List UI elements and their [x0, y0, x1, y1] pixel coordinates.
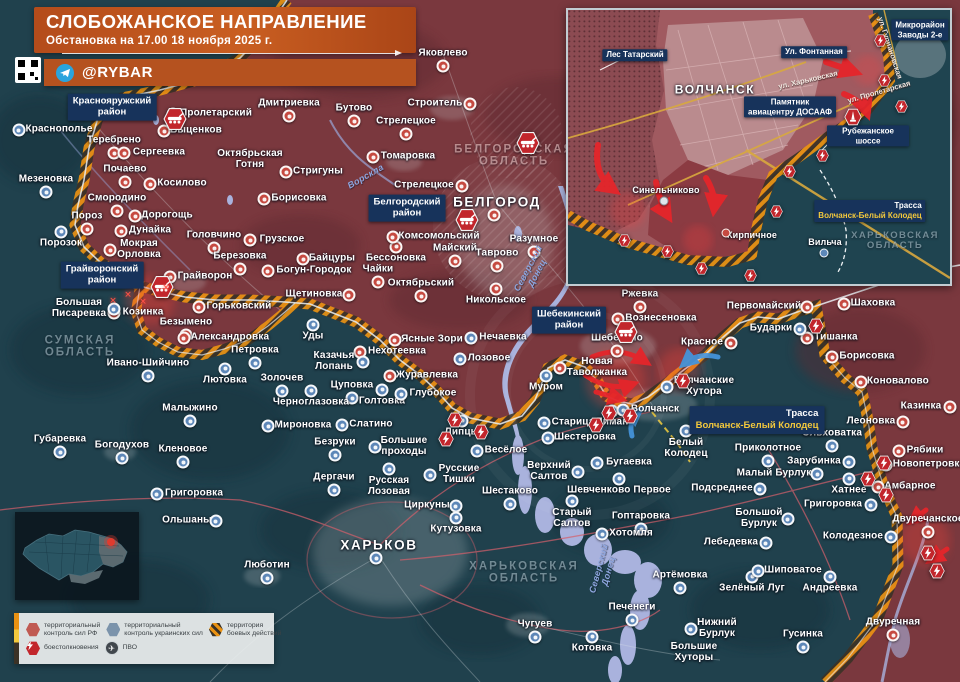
settlement-marker: [280, 166, 293, 179]
channel-bar: @RYBAR: [44, 59, 416, 86]
settlement-marker: [356, 356, 369, 369]
settlement-marker: [400, 128, 413, 141]
settlement-marker: [297, 253, 310, 266]
settlement-marker: [383, 370, 396, 383]
settlement-marker: [129, 210, 142, 223]
inset-chip: Рубежанское шоссе: [827, 125, 909, 146]
legend: территориальный контроль сил РФтерритори…: [14, 613, 274, 664]
settlement-marker: [276, 385, 289, 398]
district-chip: Грайворонский район: [61, 262, 144, 289]
settlement-marker: [824, 570, 837, 583]
settlement-marker: [797, 641, 810, 654]
settlement-marker: [150, 488, 163, 501]
settlement-marker: [753, 483, 766, 496]
inset-route-line2: Волчанск-Белый Колодец: [818, 211, 921, 221]
settlement-marker: [801, 301, 814, 314]
settlement-marker: [424, 469, 437, 482]
settlement-marker: [540, 369, 553, 382]
legend-item: территориальный контроль сил РФ: [26, 622, 100, 638]
legend-bolt-icon: [26, 641, 40, 655]
settlement-marker: [528, 246, 541, 259]
route-chip-line2: Волчанск-Белый Колодец: [696, 420, 819, 432]
inset-route-line1: Трасса: [818, 201, 921, 211]
title-arrow-line: [62, 53, 396, 54]
settlement-marker: [759, 537, 772, 550]
settlement-marker: [826, 351, 839, 364]
settlement-marker: [177, 332, 190, 345]
settlement-marker: [884, 531, 897, 544]
settlement-marker: [209, 515, 222, 528]
settlement-marker: [192, 301, 205, 314]
settlement-marker: [367, 151, 380, 164]
channel-handle: @RYBAR: [82, 64, 153, 81]
legend-item-label: ПВО: [123, 644, 137, 652]
settlement-marker: [144, 178, 157, 191]
settlement-marker: [591, 457, 604, 470]
settlement-marker: [116, 452, 129, 465]
settlement-marker: [455, 180, 468, 193]
district-chip: Краснояружский район: [68, 94, 157, 121]
settlement-marker: [463, 98, 476, 111]
settlement-marker: [491, 260, 504, 273]
legend-item-label: боестолкновения: [44, 644, 99, 652]
settlement-marker: [826, 440, 839, 453]
settlement-marker: [342, 289, 355, 302]
inset-route-chip: ТрассаВолчанск-Белый Колодец: [814, 200, 925, 222]
settlement-marker: [348, 115, 361, 128]
settlement-marker: [611, 345, 624, 358]
settlement-marker: [843, 472, 856, 485]
legend-war-icon: [209, 623, 223, 637]
settlement-marker: [635, 523, 648, 536]
settlement-marker: [529, 631, 542, 644]
page-title: СЛОБОЖАНСКОЕ НАПРАВЛЕНИЕ: [46, 12, 406, 32]
qr-code: [15, 57, 41, 83]
settlement-marker: [896, 416, 909, 429]
settlement-marker: [613, 472, 626, 485]
settlement-marker: [119, 176, 132, 189]
settlement-marker: [336, 419, 349, 432]
settlement-marker: [386, 231, 399, 244]
legend-item-label: территориальный контроль украинских сил: [124, 622, 203, 638]
inset-pin: [722, 229, 731, 238]
settlement-marker: [793, 323, 806, 336]
settlement-marker: [328, 484, 341, 497]
inset-chip: Лес Татарский: [602, 49, 667, 61]
settlement-marker: [261, 572, 274, 585]
settlement-marker: [219, 362, 232, 375]
settlement-marker: [104, 244, 117, 257]
settlement-marker: [395, 388, 408, 401]
settlement-marker: [781, 513, 794, 526]
settlement-marker: [208, 242, 221, 255]
settlement-marker: [307, 318, 320, 331]
legend-item: ✈ПВО: [105, 641, 137, 655]
settlement-marker: [571, 466, 584, 479]
clash-burst-icon: ✕: [139, 299, 147, 308]
city-marker: [370, 552, 383, 565]
inset-chip: Микрорайон Заводы 2-е: [891, 19, 948, 40]
district-chip: Белгородский район: [369, 195, 446, 222]
ukraine-minimap: [15, 512, 139, 600]
settlement-marker: [454, 353, 467, 366]
settlement-marker: [81, 223, 94, 236]
settlement-marker: [415, 290, 428, 303]
settlement-marker: [118, 147, 131, 160]
settlement-marker: [258, 193, 271, 206]
settlement-marker: [634, 301, 647, 314]
settlement-marker: [922, 526, 935, 539]
settlement-marker: [854, 376, 867, 389]
settlement-marker: [111, 205, 124, 218]
map-canvas: ПролетарскийБыценковТеребреноСергеевкаПо…: [0, 0, 960, 682]
settlement-marker: [660, 381, 673, 394]
settlement-marker: [261, 265, 274, 278]
legend-pvo-icon: ✈: [105, 641, 119, 655]
legend-item: боестолкновения: [26, 641, 99, 655]
settlement-marker: [674, 582, 687, 595]
settlement-marker: [142, 370, 155, 383]
settlement-marker: [383, 463, 396, 476]
settlement-marker: [262, 420, 275, 433]
clash-burst-icon: ✕: [162, 285, 170, 294]
settlement-marker: [449, 255, 462, 268]
settlement-marker: [329, 449, 342, 462]
settlement-marker: [54, 446, 67, 459]
legend-item: территориальный контроль украинских сил: [106, 622, 203, 638]
route-chip-line1: Трасса: [696, 408, 819, 420]
settlement-marker: [305, 384, 318, 397]
inset-chip: Ул. Фонтанная: [781, 46, 847, 58]
settlement-marker: [541, 432, 554, 445]
settlement-marker: [626, 614, 639, 627]
inset-pin: [660, 197, 669, 206]
telegram-icon: [56, 64, 74, 82]
inset-chip: Памятник авиацентру ДОСААФ: [744, 96, 836, 117]
settlement-marker: [811, 468, 824, 481]
settlement-marker: [838, 298, 851, 311]
clash-burst-icon: ✕: [109, 298, 117, 307]
inset-pin: [820, 249, 829, 258]
legend-item-label: территория боевых действий: [227, 622, 282, 638]
legend-ua-icon: [106, 623, 120, 637]
volchansk-inset-map: ВОЛЧАНСКХАРЬКОВСКАЯ ОБЛАСТЬЛес Татарский…: [566, 8, 952, 286]
settlement-marker: [586, 630, 599, 643]
legend-ru-icon: [26, 623, 40, 637]
settlement-marker: [12, 124, 25, 137]
settlement-marker: [553, 362, 566, 375]
settlement-marker: [684, 623, 697, 636]
settlement-marker: [346, 392, 359, 405]
settlement-marker: [437, 60, 450, 73]
settlement-marker: [471, 445, 484, 458]
settlement-marker: [887, 629, 900, 642]
settlement-marker: [943, 401, 956, 414]
settlement-marker: [249, 357, 262, 370]
title-banner: СЛОБОЖАНСКОЕ НАПРАВЛЕНИЕ Обстановка на 1…: [34, 7, 416, 53]
settlement-marker: [55, 225, 68, 238]
settlement-marker: [388, 334, 401, 347]
title-subtitle: Обстановка на 17.00 18 ноября 2025 г.: [46, 35, 406, 47]
settlement-marker: [115, 225, 128, 238]
settlement-marker: [376, 383, 389, 396]
settlement-marker: [762, 455, 775, 468]
settlement-marker: [244, 234, 257, 247]
settlement-marker: [465, 332, 478, 345]
settlement-marker: [596, 528, 609, 541]
city-marker: [488, 209, 501, 222]
settlement-marker: [842, 456, 855, 469]
clash-burst-icon: ✕: [124, 292, 132, 301]
settlement-marker: [40, 186, 53, 199]
settlement-marker: [283, 110, 296, 123]
settlement-marker: [892, 445, 905, 458]
settlement-marker: [372, 276, 385, 289]
settlement-marker: [504, 498, 517, 511]
route-chip: ТрассаВолчанск-Белый Колодец: [690, 406, 825, 434]
legend-item-label: территориальный контроль сил РФ: [44, 622, 100, 638]
settlement-marker: [724, 337, 737, 350]
settlement-marker: [864, 499, 877, 512]
legend-item: территория боевых действий: [209, 622, 282, 638]
settlement-marker: [234, 263, 247, 276]
settlement-marker: [538, 417, 551, 430]
district-chip: Шебекинский район: [532, 307, 606, 334]
settlement-marker: [752, 565, 765, 578]
settlement-marker: [566, 495, 579, 508]
settlement-marker: [177, 456, 190, 469]
settlement-marker: [490, 282, 503, 295]
settlement-marker: [184, 415, 197, 428]
settlement-marker: [450, 511, 463, 524]
settlement-marker: [369, 441, 382, 454]
